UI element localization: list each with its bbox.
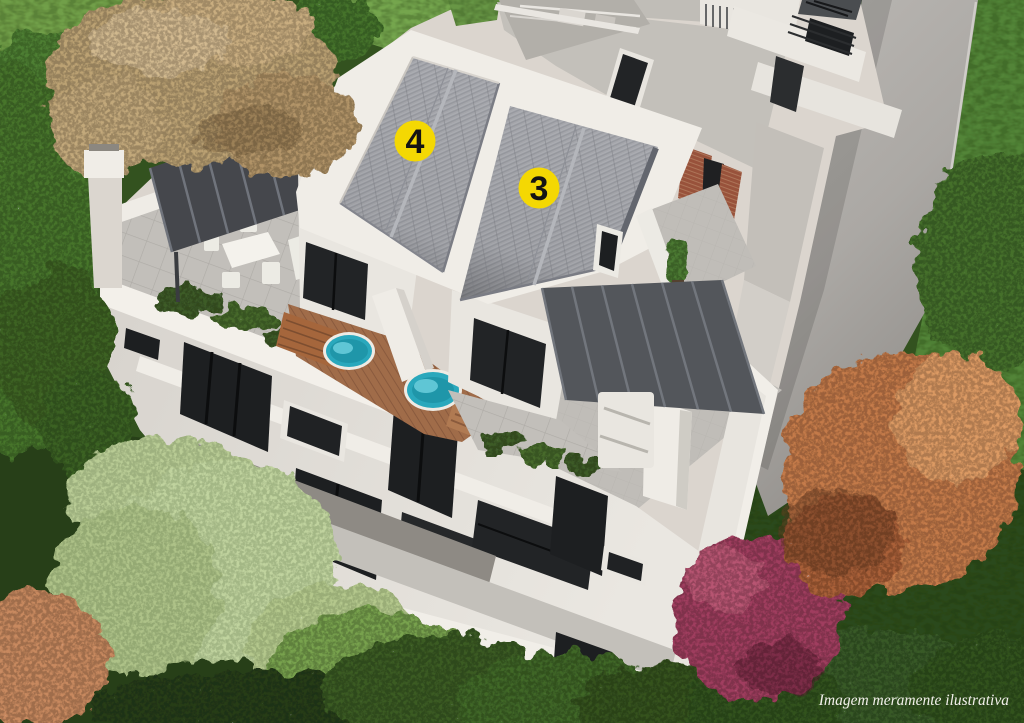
svg-text:3: 3 — [530, 170, 549, 208]
svg-text:4: 4 — [406, 123, 425, 161]
svg-text:Imagem meramente ilustrativa: Imagem meramente ilustrativa — [818, 692, 1010, 709]
